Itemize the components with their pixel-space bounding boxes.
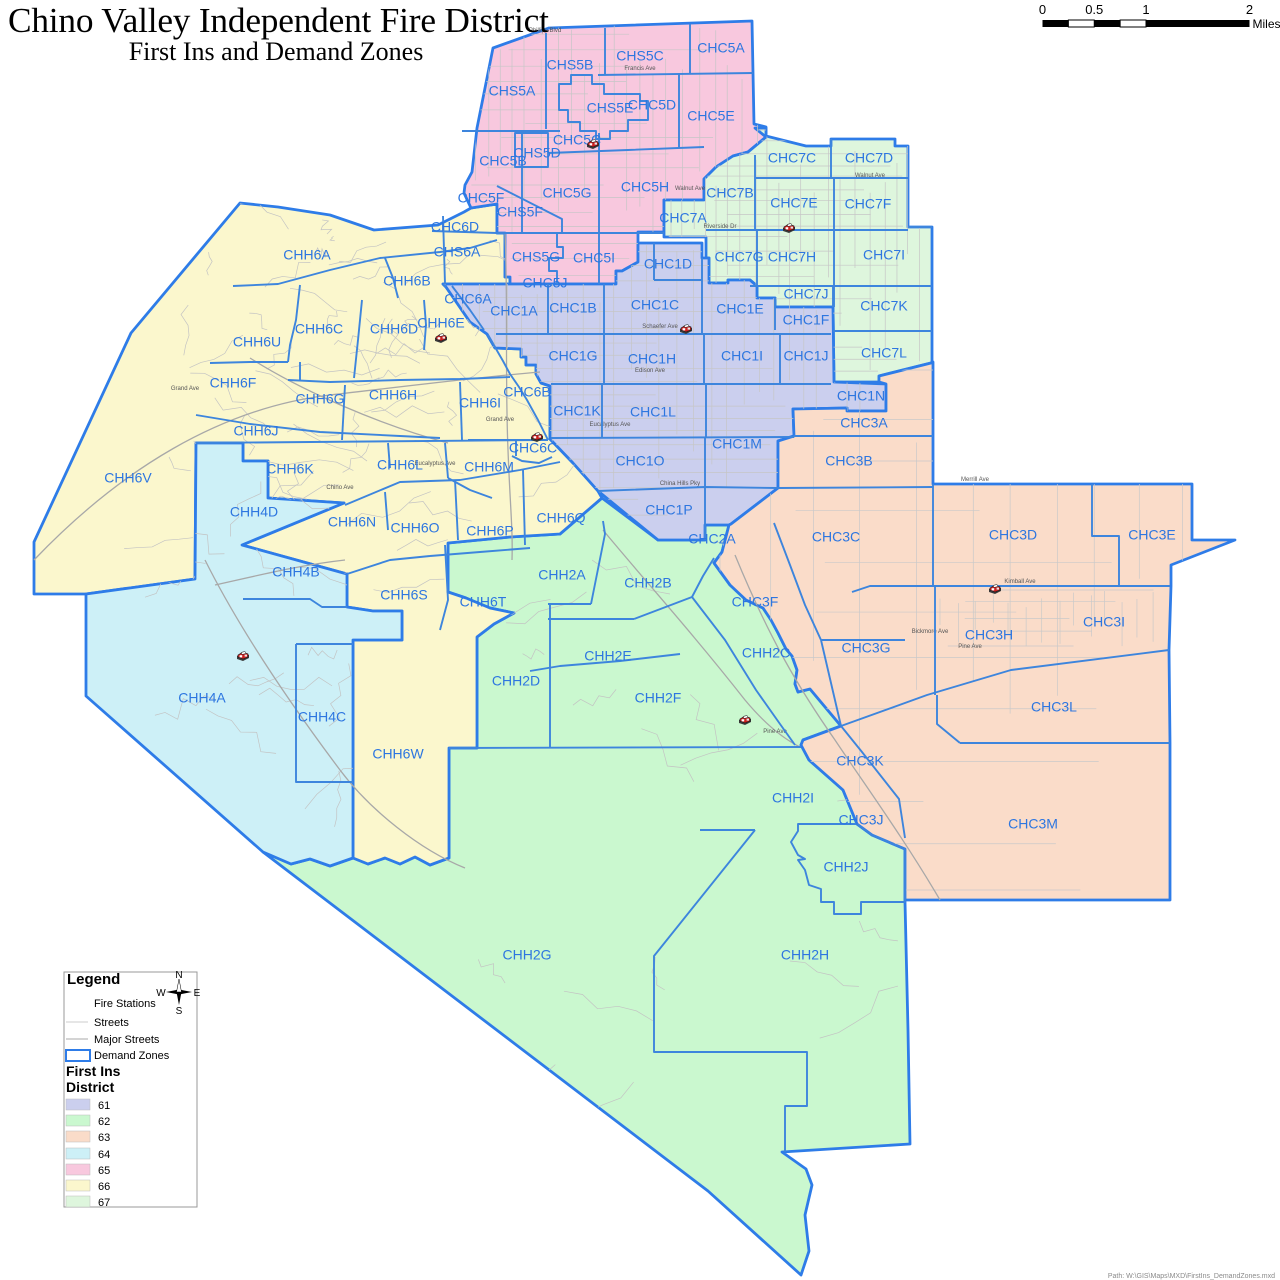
svg-text:CHC3H: CHC3H: [965, 627, 1013, 643]
svg-text:CHH6W: CHH6W: [372, 746, 424, 762]
svg-text:CHC7D: CHC7D: [845, 150, 893, 166]
svg-text:CHH6G: CHH6G: [295, 391, 344, 407]
svg-text:CHH6D: CHH6D: [370, 321, 418, 337]
svg-text:CHH4B: CHH4B: [272, 564, 319, 580]
svg-text:CHC7B: CHC7B: [706, 185, 753, 201]
svg-text:Miles: Miles: [1253, 17, 1280, 31]
svg-text:CHC3D: CHC3D: [989, 527, 1037, 543]
svg-text:CHS5A: CHS5A: [489, 83, 536, 99]
svg-text:Merrill Ave: Merrill Ave: [961, 477, 990, 483]
svg-text:CHH6A: CHH6A: [283, 247, 331, 263]
svg-text:CHH2A: CHH2A: [538, 567, 586, 583]
svg-text:Walnut Ave: Walnut Ave: [675, 186, 706, 192]
svg-text:S: S: [176, 1006, 183, 1017]
svg-text:CHC7I: CHC7I: [863, 247, 905, 263]
svg-text:First Ins: First Ins: [66, 1063, 121, 1079]
svg-text:CHH2H: CHH2H: [781, 947, 829, 963]
svg-text:CHC1A: CHC1A: [490, 303, 538, 319]
svg-text:Kimball Ave: Kimball Ave: [1004, 579, 1036, 585]
svg-text:CHC3E: CHC3E: [1128, 527, 1175, 543]
svg-text:CHC3L: CHC3L: [1031, 699, 1077, 715]
svg-text:CHH6F: CHH6F: [210, 375, 257, 391]
svg-text:CHC7L: CHC7L: [861, 345, 907, 361]
svg-text:CHH6V: CHH6V: [104, 470, 152, 486]
svg-text:62: 62: [98, 1116, 110, 1128]
svg-text:CHH6S: CHH6S: [380, 587, 427, 603]
svg-text:CHS5B: CHS5B: [547, 57, 594, 73]
svg-text:CHH6B: CHH6B: [383, 273, 430, 289]
svg-text:CHC2A: CHC2A: [688, 531, 736, 547]
svg-text:CHC1G: CHC1G: [548, 348, 597, 364]
svg-text:CHC1K: CHC1K: [553, 403, 601, 419]
svg-text:CHH6U: CHH6U: [233, 334, 281, 350]
svg-text:CHH2I: CHH2I: [772, 790, 814, 806]
svg-text:CHH6Q: CHH6Q: [536, 510, 585, 526]
svg-text:0.5: 0.5: [1085, 2, 1103, 17]
svg-text:CHC7G: CHC7G: [714, 249, 763, 265]
svg-text:CHH4A: CHH4A: [178, 690, 226, 706]
svg-text:CHC5J: CHC5J: [522, 275, 567, 291]
svg-text:CHC5E: CHC5E: [687, 108, 734, 124]
svg-text:CHC5A: CHC5A: [697, 40, 745, 56]
svg-text:CHH6P: CHH6P: [466, 523, 513, 539]
svg-text:CHH6N: CHH6N: [328, 514, 376, 530]
svg-text:0: 0: [1039, 2, 1046, 17]
svg-text:CHC1N: CHC1N: [837, 388, 885, 404]
svg-text:Pine Ave: Pine Ave: [958, 644, 982, 650]
svg-text:CHH6E: CHH6E: [417, 315, 464, 331]
svg-text:61: 61: [98, 1100, 110, 1112]
svg-text:CHC7C: CHC7C: [768, 150, 816, 166]
svg-text:CHH6J: CHH6J: [233, 423, 278, 439]
svg-text:65: 65: [98, 1165, 110, 1177]
svg-text:CHC7J: CHC7J: [783, 286, 828, 302]
svg-text:CHC6A: CHC6A: [444, 291, 492, 307]
svg-text:CHC7F: CHC7F: [845, 196, 892, 212]
svg-text:66: 66: [98, 1181, 110, 1193]
svg-text:CHC6D: CHC6D: [431, 219, 479, 235]
svg-text:CHC3A: CHC3A: [840, 415, 888, 431]
svg-text:CHS6A: CHS6A: [434, 244, 481, 260]
svg-text:CHH6O: CHH6O: [390, 520, 439, 536]
svg-text:CHC1O: CHC1O: [615, 453, 664, 469]
svg-text:CHH2G: CHH2G: [502, 947, 551, 963]
svg-text:CHC7K: CHC7K: [860, 298, 908, 314]
svg-text:CHH6H: CHH6H: [369, 387, 417, 403]
svg-text:First Ins and Demand Zones: First Ins and Demand Zones: [129, 37, 424, 66]
svg-text:63: 63: [98, 1132, 110, 1144]
svg-text:67: 67: [98, 1197, 110, 1209]
svg-text:Grand Ave: Grand Ave: [486, 417, 515, 423]
svg-text:CHH2E: CHH2E: [584, 648, 631, 664]
svg-text:CHC3J: CHC3J: [838, 812, 883, 828]
svg-text:Path: W:\GIS\Maps\MXD\FirstIns: Path: W:\GIS\Maps\MXD\FirstIns_DemandZon…: [1108, 1273, 1275, 1280]
svg-text:CHC5D: CHC5D: [628, 97, 676, 113]
svg-text:CHH4C: CHH4C: [298, 709, 346, 725]
svg-text:CHC5B: CHC5B: [479, 153, 526, 169]
svg-text:Fire Stations: Fire Stations: [94, 998, 156, 1010]
svg-text:CHH6L: CHH6L: [377, 457, 423, 473]
svg-text:CHH6I: CHH6I: [459, 395, 501, 411]
svg-text:CHC7H: CHC7H: [768, 249, 816, 265]
svg-text:CHC7E: CHC7E: [770, 195, 817, 211]
svg-text:CHC1F: CHC1F: [783, 312, 830, 328]
svg-text:W: W: [156, 988, 166, 999]
svg-text:CHH2B: CHH2B: [624, 575, 671, 591]
svg-text:Chino Valley Independent Fire: Chino Valley Independent Fire District: [8, 1, 549, 40]
svg-text:Bickmore Ave: Bickmore Ave: [912, 629, 949, 635]
svg-text:CHH2J: CHH2J: [823, 859, 868, 875]
svg-text:E: E: [194, 988, 201, 999]
svg-text:CHS5E: CHS5E: [587, 100, 634, 116]
svg-text:CHC1C: CHC1C: [631, 297, 679, 313]
svg-text:CHC1E: CHC1E: [716, 301, 763, 317]
svg-text:CHC1B: CHC1B: [549, 300, 596, 316]
svg-text:CHH6K: CHH6K: [266, 461, 314, 477]
svg-text:CHC5I: CHC5I: [573, 250, 615, 266]
svg-text:CHS5F: CHS5F: [497, 204, 543, 220]
svg-text:Eucalyptus Ave: Eucalyptus Ave: [590, 422, 632, 428]
svg-text:CHC1D: CHC1D: [644, 256, 692, 272]
svg-text:CHH2F: CHH2F: [635, 690, 682, 706]
svg-text:CHC5G: CHC5G: [542, 185, 591, 201]
svg-text:CHC1H: CHC1H: [628, 351, 676, 367]
svg-text:District: District: [66, 1079, 115, 1095]
svg-text:Major Streets: Major Streets: [94, 1034, 160, 1046]
svg-text:CHH2C: CHH2C: [742, 645, 790, 661]
svg-text:Demand Zones: Demand Zones: [94, 1050, 170, 1062]
svg-text:Schaefer Ave: Schaefer Ave: [642, 324, 678, 330]
svg-text:CHC3F: CHC3F: [732, 594, 779, 610]
svg-text:CHC3B: CHC3B: [825, 453, 872, 469]
svg-text:CHC7A: CHC7A: [659, 210, 707, 226]
svg-text:CHC3K: CHC3K: [836, 753, 884, 769]
svg-text:CHS5C: CHS5C: [616, 48, 663, 64]
svg-text:CHC6C: CHC6C: [509, 440, 557, 456]
svg-text:Grand Ave: Grand Ave: [171, 386, 200, 392]
svg-text:Legend: Legend: [67, 971, 120, 988]
svg-text:CHS5G: CHS5G: [512, 249, 560, 265]
svg-text:CHC1P: CHC1P: [645, 502, 692, 518]
svg-text:Francis Ave: Francis Ave: [624, 66, 656, 72]
svg-text:CHH4D: CHH4D: [230, 504, 278, 520]
svg-text:CHH2D: CHH2D: [492, 673, 540, 689]
svg-text:CHC1M: CHC1M: [712, 436, 762, 452]
svg-text:2: 2: [1246, 2, 1253, 17]
svg-text:CHH6M: CHH6M: [464, 459, 514, 475]
svg-text:CHC1L: CHC1L: [630, 404, 676, 420]
svg-text:CHH6C: CHH6C: [295, 321, 343, 337]
svg-text:Streets: Streets: [94, 1017, 129, 1029]
svg-text:CHC3C: CHC3C: [812, 529, 860, 545]
svg-text:Edison Ave: Edison Ave: [635, 368, 666, 374]
svg-text:CHC3M: CHC3M: [1008, 816, 1058, 832]
svg-text:64: 64: [98, 1149, 110, 1161]
svg-text:CHH6T: CHH6T: [460, 594, 507, 610]
svg-text:1: 1: [1142, 2, 1149, 17]
svg-text:CHC5H: CHC5H: [621, 179, 669, 195]
svg-text:CHC6B: CHC6B: [503, 384, 550, 400]
svg-text:Chino Ave: Chino Ave: [326, 485, 354, 491]
svg-text:CHC1I: CHC1I: [721, 348, 763, 364]
svg-text:CHC3I: CHC3I: [1083, 614, 1125, 630]
svg-text:CHC3G: CHC3G: [841, 640, 890, 656]
svg-text:China Hills Pky: China Hills Pky: [660, 481, 700, 487]
svg-text:CHC1J: CHC1J: [783, 348, 828, 364]
